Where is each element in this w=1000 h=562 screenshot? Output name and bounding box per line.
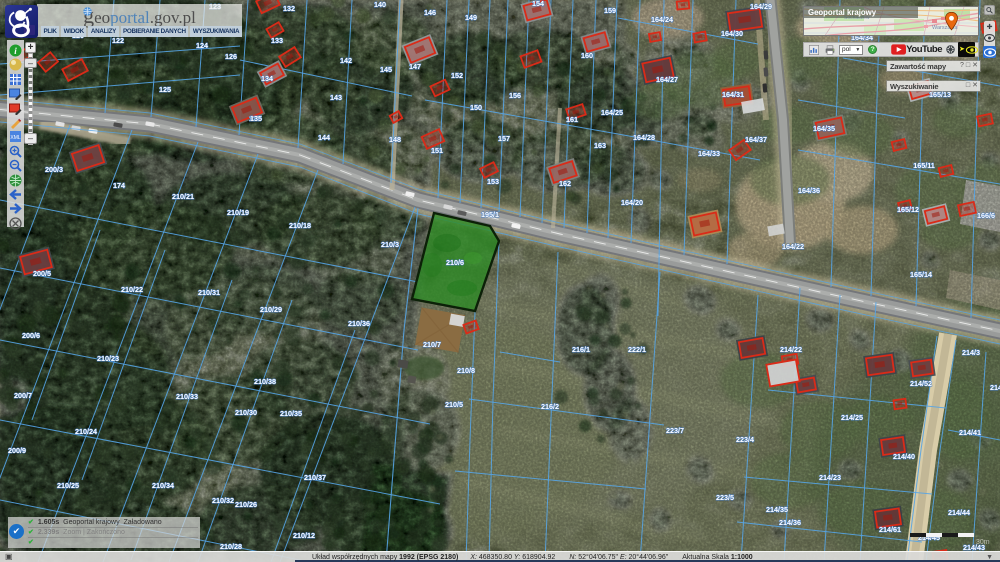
svg-text:164/20: 164/20 xyxy=(621,198,643,207)
svg-text:164/30: 164/30 xyxy=(721,29,743,38)
svg-text:210/29: 210/29 xyxy=(260,305,282,314)
svg-text:164/33: 164/33 xyxy=(698,149,720,158)
svg-text:214/44: 214/44 xyxy=(948,508,970,517)
svg-text:216/1: 216/1 xyxy=(572,345,590,354)
svg-text:122: 122 xyxy=(112,36,124,45)
svg-text:214/41: 214/41 xyxy=(959,428,981,437)
svg-text:145: 145 xyxy=(380,65,392,74)
svg-text:164/36: 164/36 xyxy=(798,186,820,195)
svg-text:214/40: 214/40 xyxy=(893,452,915,461)
svg-text:164/25: 164/25 xyxy=(601,108,623,117)
svg-text:133: 133 xyxy=(271,36,283,45)
svg-text:164/37: 164/37 xyxy=(745,135,767,144)
svg-text:162: 162 xyxy=(559,179,571,188)
svg-text:195/1: 195/1 xyxy=(481,210,499,219)
svg-text:156: 156 xyxy=(509,91,521,100)
svg-text:174: 174 xyxy=(113,181,125,190)
svg-text:210/7: 210/7 xyxy=(423,340,441,349)
svg-text:214/3: 214/3 xyxy=(962,348,980,357)
svg-text:214/61: 214/61 xyxy=(879,525,901,534)
svg-text:214/25: 214/25 xyxy=(841,413,863,422)
svg-text:214/23: 214/23 xyxy=(819,473,841,482)
svg-text:210/8: 210/8 xyxy=(457,366,475,375)
svg-text:210/19: 210/19 xyxy=(227,208,249,217)
svg-text:166/6: 166/6 xyxy=(977,211,995,220)
svg-text:144: 144 xyxy=(318,133,330,142)
svg-text:164/35: 164/35 xyxy=(813,124,835,133)
svg-text:210/31: 210/31 xyxy=(198,288,220,297)
svg-text:210/34: 210/34 xyxy=(152,481,174,490)
svg-text:210/6: 210/6 xyxy=(446,258,464,267)
svg-text:210/23: 210/23 xyxy=(97,354,119,363)
svg-text:210/28: 210/28 xyxy=(220,542,242,551)
svg-text:30m: 30m xyxy=(976,539,990,546)
svg-text:140: 140 xyxy=(374,0,386,9)
svg-text:210/37: 210/37 xyxy=(304,473,326,482)
svg-text:200/5: 200/5 xyxy=(33,269,51,278)
svg-text:160: 160 xyxy=(581,51,593,60)
svg-text:153: 153 xyxy=(487,177,499,186)
svg-text:223/4: 223/4 xyxy=(736,435,754,444)
svg-text:163: 163 xyxy=(594,141,606,150)
svg-text:147: 147 xyxy=(409,62,421,71)
svg-text:223/5: 223/5 xyxy=(716,493,734,502)
svg-text:152: 152 xyxy=(451,71,463,80)
svg-text:222/1: 222/1 xyxy=(628,345,646,354)
svg-text:210/35: 210/35 xyxy=(280,409,302,418)
svg-text:210/33: 210/33 xyxy=(176,392,198,401)
svg-text:164/27: 164/27 xyxy=(656,75,678,84)
svg-text:125: 125 xyxy=(159,85,171,94)
svg-text:210/5: 210/5 xyxy=(445,400,463,409)
svg-text:154: 154 xyxy=(532,0,544,8)
svg-text:148: 148 xyxy=(389,135,401,144)
svg-text:210/24: 210/24 xyxy=(75,427,97,436)
svg-text:214/4: 214/4 xyxy=(990,383,1000,392)
svg-text:214/36: 214/36 xyxy=(779,518,801,527)
svg-text:159: 159 xyxy=(604,6,616,15)
svg-text:200/9: 200/9 xyxy=(8,446,26,455)
svg-text:210/26: 210/26 xyxy=(235,500,257,509)
svg-text:149: 149 xyxy=(465,13,477,22)
svg-text:210/22: 210/22 xyxy=(121,285,143,294)
svg-text:210/38: 210/38 xyxy=(254,377,276,386)
svg-text:132: 132 xyxy=(283,4,295,13)
svg-text:165/11: 165/11 xyxy=(913,161,935,170)
svg-text:161: 161 xyxy=(566,115,578,124)
svg-text:200/6: 200/6 xyxy=(22,331,40,340)
svg-text:210/25: 210/25 xyxy=(57,481,79,490)
svg-text:142: 142 xyxy=(340,56,352,65)
svg-text:200/3: 200/3 xyxy=(45,165,63,174)
svg-text:134: 134 xyxy=(261,74,273,83)
svg-text:135: 135 xyxy=(250,114,262,123)
svg-text:210/12: 210/12 xyxy=(293,531,315,540)
svg-text:126: 126 xyxy=(225,52,237,61)
svg-text:210/32: 210/32 xyxy=(212,496,234,505)
svg-text:164/22: 164/22 xyxy=(782,242,804,251)
svg-text:214/35: 214/35 xyxy=(766,505,788,514)
svg-text:210/36: 210/36 xyxy=(348,319,370,328)
svg-text:124: 124 xyxy=(196,41,208,50)
svg-text:210/3: 210/3 xyxy=(381,240,399,249)
svg-text:165/14: 165/14 xyxy=(910,270,932,279)
svg-text:157: 157 xyxy=(498,134,510,143)
svg-text:223/7: 223/7 xyxy=(666,426,684,435)
svg-text:200/7: 200/7 xyxy=(14,391,32,400)
svg-text:214/22: 214/22 xyxy=(780,345,802,354)
svg-text:210/30: 210/30 xyxy=(235,408,257,417)
svg-text:164/28: 164/28 xyxy=(633,133,655,142)
svg-text:164/31: 164/31 xyxy=(722,90,744,99)
svg-text:150: 150 xyxy=(470,103,482,112)
svg-text:216/2: 216/2 xyxy=(541,402,559,411)
svg-text:164/29: 164/29 xyxy=(750,2,772,11)
svg-text:143: 143 xyxy=(330,93,342,102)
svg-text:146: 146 xyxy=(424,8,436,17)
svg-text:165/13: 165/13 xyxy=(929,90,951,99)
svg-text:XML: XML xyxy=(10,135,21,141)
svg-text:165/12: 165/12 xyxy=(897,205,919,214)
svg-text:210/21: 210/21 xyxy=(172,192,194,201)
svg-text:164/24: 164/24 xyxy=(651,15,673,24)
svg-text:214/52: 214/52 xyxy=(910,379,932,388)
svg-text:210/18: 210/18 xyxy=(289,221,311,230)
svg-text:151: 151 xyxy=(431,146,443,155)
